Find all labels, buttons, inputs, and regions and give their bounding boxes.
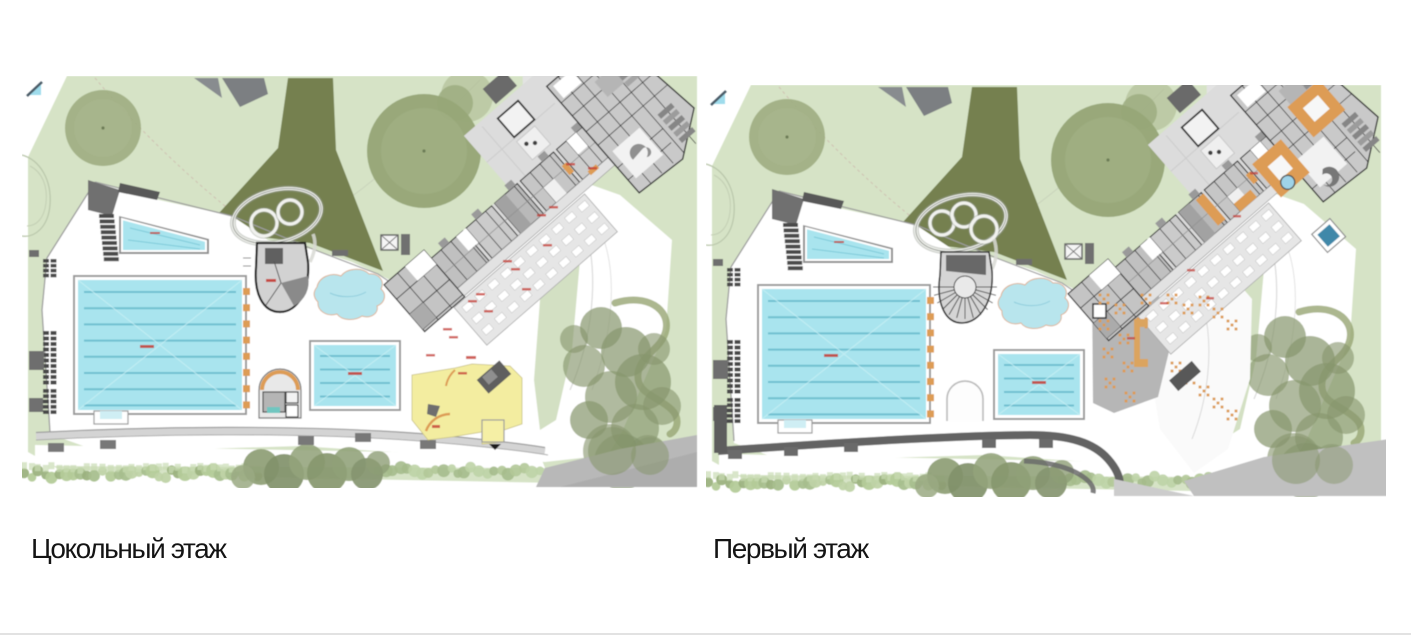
svg-text:Первый этаж: Первый этаж [713, 533, 869, 564]
svg-text:Цокольный этаж: Цокольный этаж [31, 533, 227, 564]
